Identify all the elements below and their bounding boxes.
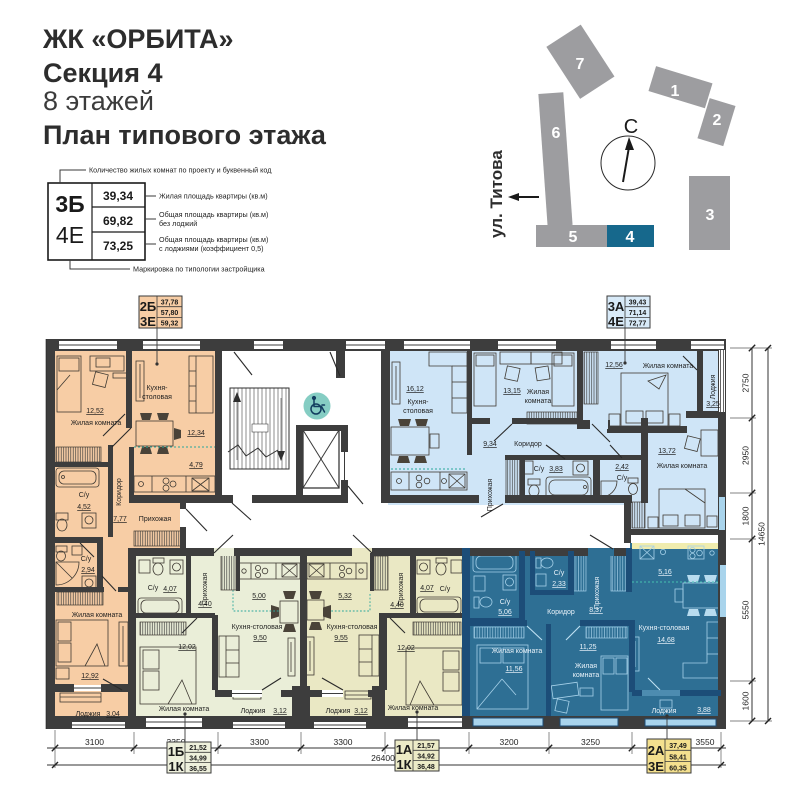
svg-text:Кухня-: Кухня- [146,385,168,392]
svg-text:3,25: 3,25 [706,401,720,408]
svg-text:Жилая: Жилая [575,663,597,670]
svg-text:Прихожая: Прихожая [139,516,172,523]
svg-text:14,68: 14,68 [657,637,675,644]
svg-text:С/у: С/у [79,492,90,499]
svg-text:37,49: 37,49 [669,743,687,750]
svg-text:26400: 26400 [371,753,395,763]
svg-text:3,04: 3,04 [106,711,120,718]
svg-text:3550: 3550 [696,737,715,747]
svg-text:Секция 4: Секция 4 [43,58,163,88]
svg-text:Лоджия: Лоджия [710,374,717,399]
svg-text:5,00: 5,00 [252,593,266,600]
svg-text:1600: 1600 [741,691,751,710]
svg-text:Количество жилых комнат по про: Количество жилых комнат по проекту и бук… [89,166,272,175]
svg-text:С/у: С/у [534,466,545,473]
svg-text:Коридор: Коридор [547,609,575,616]
svg-text:12,92: 12,92 [81,673,99,680]
svg-text:С/у: С/у [617,475,628,482]
svg-text:2,42: 2,42 [615,464,629,471]
svg-text:12,56: 12,56 [605,362,623,369]
svg-text:16,12: 16,12 [406,386,424,393]
svg-text:3: 3 [706,207,715,224]
svg-text:Жилая комната: Жилая комната [643,363,694,370]
svg-text:3А: 3А [608,299,625,314]
svg-text:столовая: столовая [403,408,433,415]
svg-text:2950: 2950 [741,446,751,465]
svg-text:3,83: 3,83 [549,466,563,473]
svg-text:Жилая комната: Жилая комната [71,420,122,427]
svg-text:71,14: 71,14 [629,310,647,317]
svg-text:1А: 1А [396,742,413,757]
svg-text:3,12: 3,12 [354,708,368,715]
svg-text:12,52: 12,52 [86,408,104,415]
svg-text:С/у: С/у [554,570,565,577]
svg-text:5550: 5550 [741,600,751,619]
svg-text:Кухня-столовая: Кухня-столовая [232,624,283,631]
svg-text:59,32: 59,32 [161,321,179,328]
svg-text:Кухня-столовая: Кухня-столовая [639,625,690,632]
svg-text:2: 2 [713,112,722,129]
svg-text:11,25: 11,25 [580,644,597,651]
svg-text:Прихожая: Прихожая [398,573,405,606]
svg-text:комната: комната [573,672,600,679]
svg-text:7,77: 7,77 [113,516,127,523]
svg-text:3250: 3250 [581,737,600,747]
svg-text:Жилая комната: Жилая комната [159,706,210,713]
svg-text:1Б: 1Б [168,744,185,759]
svg-text:4,79: 4,79 [189,462,203,469]
svg-text:5,32: 5,32 [338,593,352,600]
svg-text:1800: 1800 [741,506,751,525]
svg-text:4,52: 4,52 [77,504,91,511]
svg-text:ЖК «ОРБИТА»: ЖК «ОРБИТА» [42,24,234,54]
svg-text:36,55: 36,55 [189,766,207,773]
svg-text:С/у: С/у [81,556,92,563]
svg-text:4,07: 4,07 [163,586,177,593]
svg-text:столовая: столовая [142,394,172,401]
svg-text:13,15: 13,15 [503,388,521,395]
svg-text:2,94: 2,94 [81,567,95,574]
svg-text:34,99: 34,99 [189,756,207,763]
svg-text:72,77: 72,77 [629,321,647,328]
svg-text:21,52: 21,52 [189,745,207,752]
svg-text:Коридор: Коридор [116,478,123,506]
svg-text:9,50: 9,50 [253,635,267,642]
svg-text:21,57: 21,57 [417,743,435,750]
svg-text:Лоджия: Лоджия [241,708,266,715]
svg-text:73,25: 73,25 [103,239,133,253]
svg-text:9,55: 9,55 [334,635,348,642]
svg-text:Жилая комната: Жилая комната [72,612,123,619]
svg-text:Маркировка по типологии зас: Маркировка по типологии застройщика [133,265,265,274]
svg-text:3200: 3200 [500,737,519,747]
svg-text:39,43: 39,43 [629,300,647,307]
svg-text:4,40: 4,40 [390,602,404,609]
svg-text:36,48: 36,48 [417,764,435,771]
svg-text:Лоджия: Лоджия [326,708,351,715]
svg-text:3Е: 3Е [648,759,664,774]
svg-text:11,56: 11,56 [506,666,523,673]
svg-text:3,12: 3,12 [273,708,287,715]
svg-text:1К: 1К [396,757,411,772]
svg-text:34,92: 34,92 [417,754,435,761]
svg-text:Жилая комната: Жилая комната [657,463,708,470]
svg-text:2Б: 2Б [140,299,157,314]
svg-text:Жилая площадь квартиры (кв.м): Жилая площадь квартиры (кв.м) [159,192,268,201]
svg-text:комната: комната [525,398,552,405]
svg-text:14650: 14650 [757,522,767,546]
svg-text:2,33: 2,33 [552,581,566,588]
svg-text:39,34: 39,34 [103,189,133,203]
svg-text:Общая площадь квартиры (кв.м): Общая площадь квартиры (кв.м) [159,210,268,219]
svg-text:37,78: 37,78 [161,300,179,307]
svg-text:6: 6 [552,125,561,142]
svg-text:3,88: 3,88 [697,707,711,714]
svg-text:3300: 3300 [334,737,353,747]
svg-text:Прихожая: Прихожая [594,577,601,610]
svg-text:4: 4 [626,229,635,246]
svg-text:9,34: 9,34 [483,441,497,448]
svg-text:Жилая: Жилая [527,389,549,396]
svg-text:3300: 3300 [250,737,269,747]
svg-text:3100: 3100 [85,737,104,747]
svg-text:7: 7 [576,56,585,73]
svg-text:2750: 2750 [741,373,751,392]
svg-text:2А: 2А [648,743,665,758]
svg-text:8 этажей: 8 этажей [43,86,154,116]
svg-text:Прихожая: Прихожая [487,479,494,512]
svg-text:58,41: 58,41 [669,755,687,762]
svg-text:3Е: 3Е [140,314,156,329]
svg-text:С/у: С/у [440,586,451,593]
svg-text:4Е: 4Е [56,222,84,248]
svg-text:Кухня-: Кухня- [407,399,429,406]
svg-text:69,82: 69,82 [103,214,133,228]
svg-text:4,07: 4,07 [420,585,434,592]
svg-text:С/у: С/у [148,585,159,592]
svg-text:Лоджия: Лоджия [652,708,677,715]
svg-text:Лоджия: Лоджия [76,711,101,718]
svg-text:12,34: 12,34 [187,430,205,437]
svg-text:ул. Титова: ул. Титова [487,150,506,238]
svg-text:1: 1 [671,83,680,100]
svg-text:Кухня-столовая: Кухня-столовая [327,624,378,631]
svg-text:Общая площадь квартиры (кв.м): Общая площадь квартиры (кв.м) [159,235,268,244]
svg-text:13,72: 13,72 [658,448,676,455]
svg-text:5,16: 5,16 [658,569,672,576]
svg-text:С: С [624,116,638,138]
svg-text:без лоджий: без лоджий [159,219,197,228]
svg-text:4Е: 4Е [608,314,624,329]
svg-text:3Б: 3Б [55,191,84,217]
svg-text:4,40: 4,40 [198,601,212,608]
svg-text:57,80: 57,80 [161,310,179,317]
svg-text:60,35: 60,35 [669,766,687,773]
svg-text:12,02: 12,02 [178,644,196,651]
svg-text:12,02: 12,02 [397,645,415,652]
svg-text:Жилая комната: Жилая комната [388,705,439,712]
svg-text:Жилая комната: Жилая комната [492,648,543,655]
svg-text:5,06: 5,06 [498,609,512,616]
svg-text:С/у: С/у [500,599,511,606]
svg-text:5: 5 [569,229,578,246]
svg-text:План типового этажа: План типового этажа [43,120,327,150]
svg-text:1К: 1К [168,759,183,774]
svg-text:с лоджиями (коэффициент 0,5): с лоджиями (коэффициент 0,5) [159,244,263,253]
svg-text:Коридор: Коридор [514,441,542,448]
